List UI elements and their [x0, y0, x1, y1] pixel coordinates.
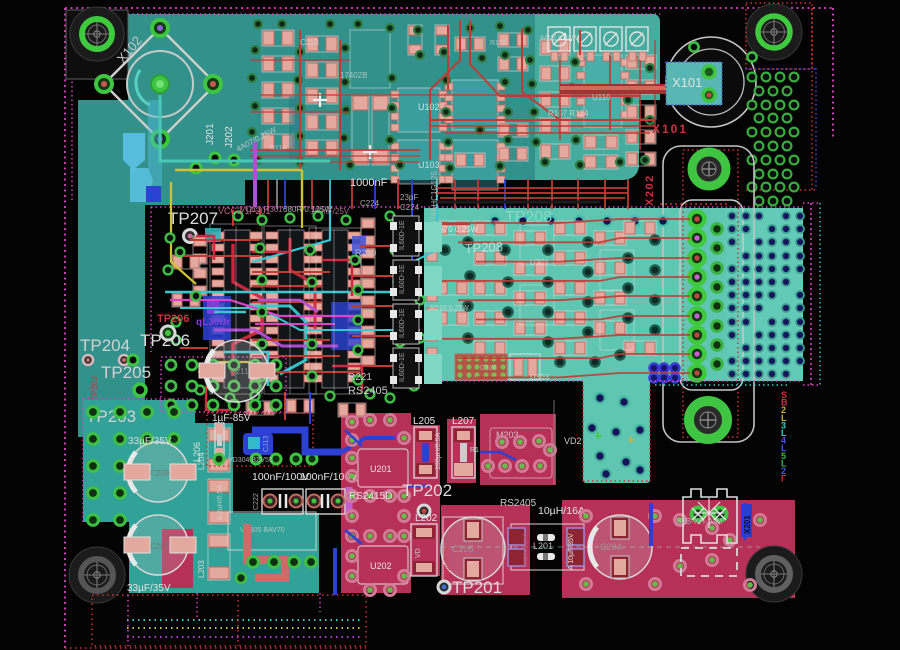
- svg-text:IL60D-1E: IL60D-1E: [399, 308, 406, 338]
- svg-text:VD2: VD2: [564, 436, 582, 446]
- svg-text:L205: L205: [413, 416, 436, 427]
- svg-text:23pF: 23pF: [400, 193, 418, 202]
- svg-text:33µF/35V: 33µF/35V: [127, 583, 171, 594]
- svg-text:TP202: TP202: [402, 481, 452, 500]
- svg-text:X201: X201: [743, 515, 752, 534]
- svg-text:10µH/16A: 10µH/16A: [538, 505, 585, 517]
- svg-text:C222: C222: [253, 493, 260, 510]
- svg-text:IL60D-1E: IL60D-1E: [399, 264, 406, 294]
- svg-text:100µH/0.5A: 100µH/0.5A: [435, 433, 442, 470]
- svg-text:L204: L204: [197, 452, 206, 470]
- svg-text:U110: U110: [592, 93, 611, 102]
- svg-text:U201: U201: [370, 464, 392, 474]
- svg-text:RS2405: RS2405: [348, 385, 388, 397]
- svg-text:TP208: TP208: [505, 209, 552, 226]
- svg-text:VD304 BZV55: VD304 BZV55: [228, 457, 273, 464]
- svg-text:L201: L201: [533, 541, 553, 551]
- svg-text:U103: U103: [418, 160, 440, 170]
- svg-text:U202: U202: [370, 561, 392, 571]
- svg-text:C224: C224: [360, 199, 380, 208]
- svg-text:TP208: TP208: [464, 239, 503, 256]
- svg-text:TP201: TP201: [452, 578, 502, 597]
- svg-text:X101: X101: [672, 75, 702, 90]
- svg-text:TP204: TP204: [80, 336, 130, 355]
- svg-text:1000nF: 1000nF: [350, 177, 388, 189]
- svg-text:TP206: TP206: [157, 313, 189, 325]
- svg-text:8.2uH/0.5A: 8.2uH/0.5A: [217, 485, 224, 520]
- svg-text:IL60D-1E: IL60D-1E: [399, 220, 406, 250]
- svg-text:680R/0.125W: 680R/0.125W: [283, 205, 332, 214]
- svg-text:4A07 0.25W: 4A07 0.25W: [540, 35, 579, 42]
- svg-text:C204: C204: [600, 542, 622, 552]
- svg-text:B2B-XH-A-M: B2B-XH-A-M: [676, 517, 723, 526]
- svg-text:TP203: TP203: [90, 376, 99, 400]
- svg-text:RS2415D: RS2415D: [349, 491, 392, 502]
- svg-text:VCC3 1P201: VCC3 1P201: [218, 206, 271, 216]
- svg-text:L207: L207: [452, 416, 475, 427]
- svg-text:C207: C207: [150, 542, 170, 551]
- svg-text:U102: U102: [418, 102, 440, 112]
- svg-text:L202: L202: [415, 513, 438, 524]
- svg-text:A 10µF/35V: A 10µF/35V: [568, 533, 575, 570]
- svg-text:Г: Г: [781, 474, 786, 484]
- svg-text:qL30Ur: qL30Ur: [196, 317, 231, 328]
- svg-text:C205: C205: [452, 544, 474, 554]
- svg-text:VD: VD: [415, 548, 422, 558]
- svg-text:R107 R124: R107 R124: [548, 109, 589, 118]
- svg-text:R114: R114: [270, 145, 286, 152]
- svg-text:IL60D-1E: IL60D-1E: [399, 352, 406, 382]
- svg-text:J202: J202: [224, 126, 235, 148]
- svg-text:MBR20100: MBR20100: [523, 533, 530, 566]
- svg-text:R219: R219: [355, 248, 377, 258]
- svg-text:R1: R1: [470, 447, 479, 454]
- svg-text:RS2405: RS2405: [500, 498, 537, 509]
- svg-text:10µH/0.5A: 10µH/0.5A: [444, 544, 451, 578]
- svg-text:J201: J201: [205, 123, 216, 145]
- svg-text:C209: C209: [150, 469, 170, 478]
- svg-text:X202: X202: [644, 174, 656, 206]
- svg-text:TP205: TP205: [101, 363, 151, 382]
- svg-text:C113: C113: [300, 38, 319, 47]
- svg-text:C316: C316: [480, 365, 497, 372]
- svg-text:33µF/35V: 33µF/35V: [128, 436, 172, 447]
- svg-text:C211: C211: [230, 367, 249, 376]
- svg-text:L203: L203: [197, 560, 206, 578]
- svg-text:CJ13: CJ13: [263, 436, 270, 452]
- svg-text:1µF-85V: 1µF-85V: [212, 413, 251, 424]
- svg-text:U301: U301: [530, 258, 550, 267]
- svg-text:R102: R102: [490, 40, 507, 47]
- svg-text:R221: R221: [348, 372, 372, 383]
- svg-text:TP207: TP207: [168, 209, 218, 228]
- svg-text:X101: X101: [652, 122, 688, 136]
- svg-text:17402B: 17402B: [340, 71, 368, 80]
